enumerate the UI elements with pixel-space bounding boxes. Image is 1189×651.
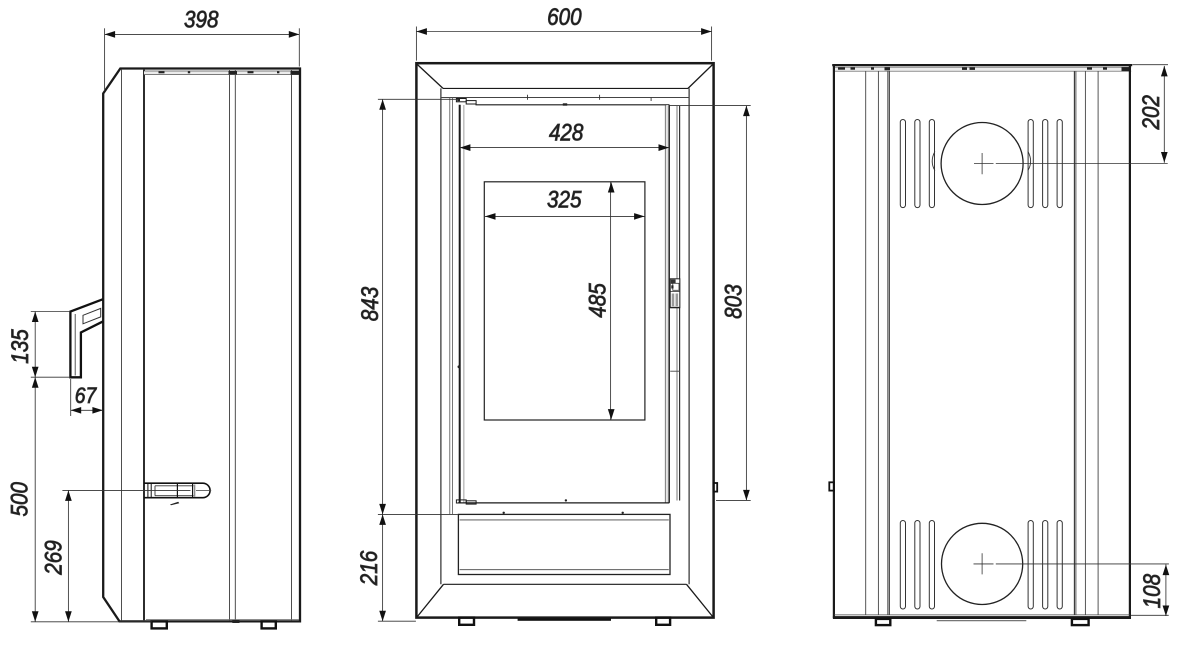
svg-text:485: 485 xyxy=(585,283,612,318)
svg-text:108: 108 xyxy=(1139,574,1166,609)
svg-text:398: 398 xyxy=(184,7,219,34)
svg-text:600: 600 xyxy=(547,4,582,31)
svg-text:67: 67 xyxy=(75,383,97,408)
svg-text:843: 843 xyxy=(357,286,384,321)
svg-text:202: 202 xyxy=(1138,95,1165,131)
svg-text:500: 500 xyxy=(7,482,34,517)
svg-text:216: 216 xyxy=(356,550,383,586)
svg-text:803: 803 xyxy=(721,284,748,319)
svg-text:135: 135 xyxy=(7,329,34,364)
svg-text:269: 269 xyxy=(41,540,68,576)
svg-text:325: 325 xyxy=(547,186,582,213)
svg-text:428: 428 xyxy=(549,120,584,147)
